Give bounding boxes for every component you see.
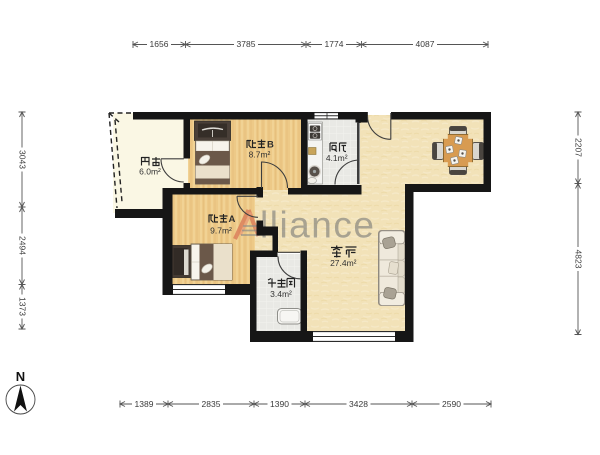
svg-text:9.7m²: 9.7m²: [210, 226, 232, 236]
svg-text:1389: 1389: [135, 399, 154, 409]
svg-text:N: N: [16, 369, 25, 384]
svg-text:1656: 1656: [150, 39, 169, 49]
svg-text:A: A: [229, 214, 236, 225]
svg-text:3.4m²: 3.4m²: [270, 289, 292, 299]
svg-text:2494: 2494: [18, 236, 28, 255]
svg-text:27.4m²: 27.4m²: [330, 258, 357, 268]
svg-text:4823: 4823: [574, 250, 584, 269]
svg-text:3043: 3043: [18, 150, 28, 169]
svg-text:2835: 2835: [202, 399, 221, 409]
svg-text:3785: 3785: [237, 39, 256, 49]
svg-text:8.7m²: 8.7m²: [249, 150, 271, 160]
svg-text:4087: 4087: [416, 39, 435, 49]
svg-text:3428: 3428: [349, 399, 368, 409]
svg-text:4.1m²: 4.1m²: [326, 153, 348, 163]
svg-text:1373: 1373: [18, 297, 28, 316]
svg-text:6.0m²: 6.0m²: [139, 167, 161, 177]
svg-text:2207: 2207: [574, 138, 584, 157]
svg-text:1774: 1774: [325, 39, 344, 49]
svg-text:2590: 2590: [442, 399, 461, 409]
svg-text:1390: 1390: [270, 399, 289, 409]
